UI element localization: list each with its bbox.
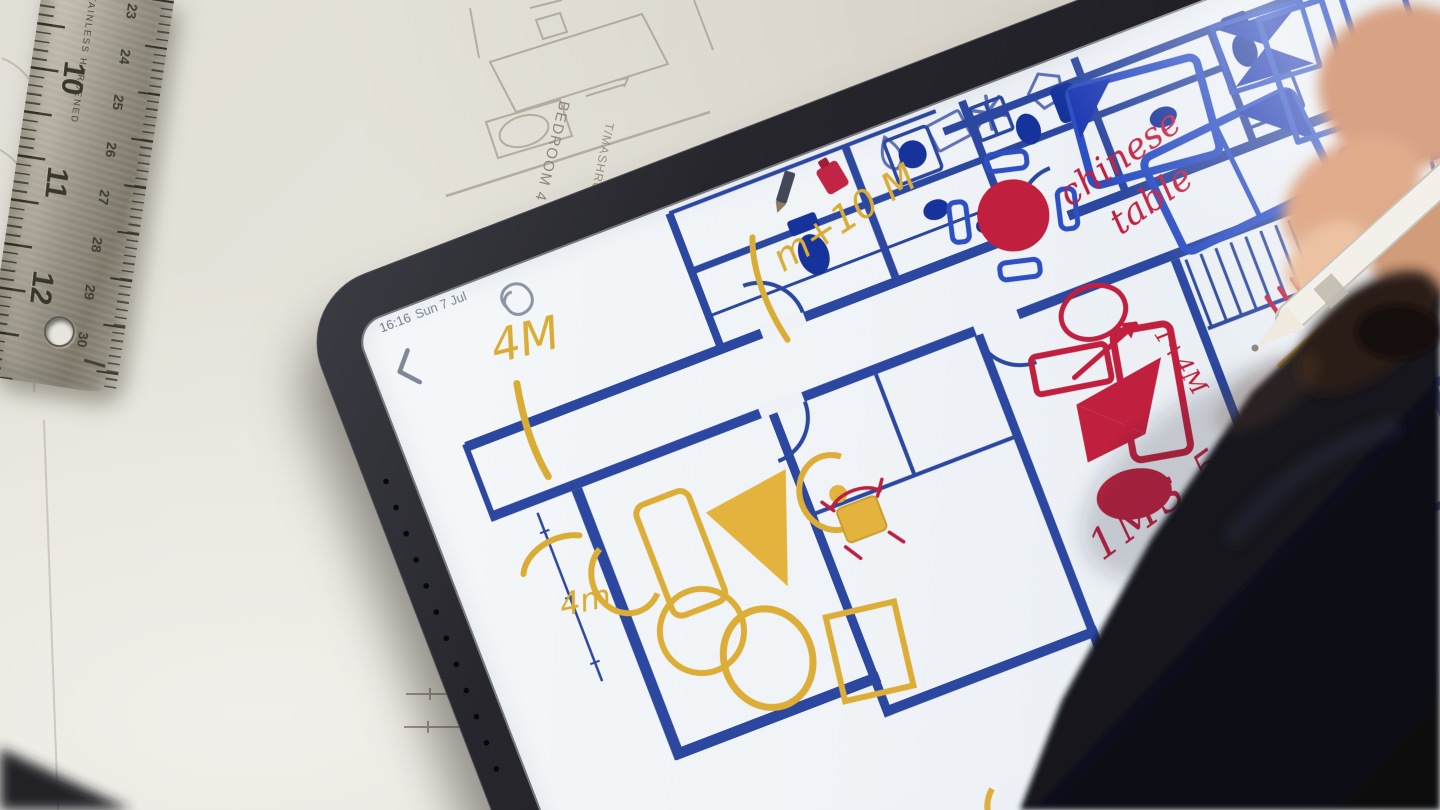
ruler-number-cm: 28 xyxy=(88,236,106,254)
steel-ruler: STAINLESS HARDENED 10 11 12 23 24 25 26 … xyxy=(0,0,175,395)
ruler-hanging-hole xyxy=(42,314,77,349)
ruler-number-cm: 27 xyxy=(95,188,113,206)
ruler-number-inch: 10 xyxy=(54,59,91,98)
status-time: 16:16 xyxy=(377,310,413,336)
ruler-number-cm: 23 xyxy=(123,2,141,20)
ruler-number-cm: 25 xyxy=(109,93,127,111)
photo-scene: BEDROOM 4 T/MASHRU STAINLESS HARDENED 10… xyxy=(0,0,1440,810)
back-button[interactable] xyxy=(394,350,420,387)
red-hatching xyxy=(1264,276,1316,331)
pencil-tool-icon[interactable] xyxy=(772,170,795,214)
red-marker-tool-icon[interactable] xyxy=(811,153,850,195)
paper-room-label: BEDROOM 4 xyxy=(531,99,573,204)
corner-shadow xyxy=(0,748,132,810)
ruler-number-inch: 12 xyxy=(22,268,59,307)
ruler-number-cm: 30 xyxy=(74,331,92,349)
ruler-number-inch: 11 xyxy=(37,164,74,202)
back-chevron-icon[interactable] xyxy=(394,350,420,387)
tablet-device: 16:16 Sun 7 Jul xyxy=(295,0,1440,810)
status-date: Sun 7 Jul xyxy=(413,288,469,321)
ruler-number-cm: 29 xyxy=(81,283,99,301)
ruler-number-cm: 24 xyxy=(116,48,134,66)
yellow-dim-top: 4M xyxy=(485,305,565,374)
tablet-screen: 16:16 Sun 7 Jul xyxy=(353,0,1440,810)
status-bar: 16:16 Sun 7 Jul xyxy=(377,288,469,335)
ruler-number-cm: 26 xyxy=(102,141,120,159)
drawing-app-canvas: 16:16 Sun 7 Jul xyxy=(353,0,1440,810)
